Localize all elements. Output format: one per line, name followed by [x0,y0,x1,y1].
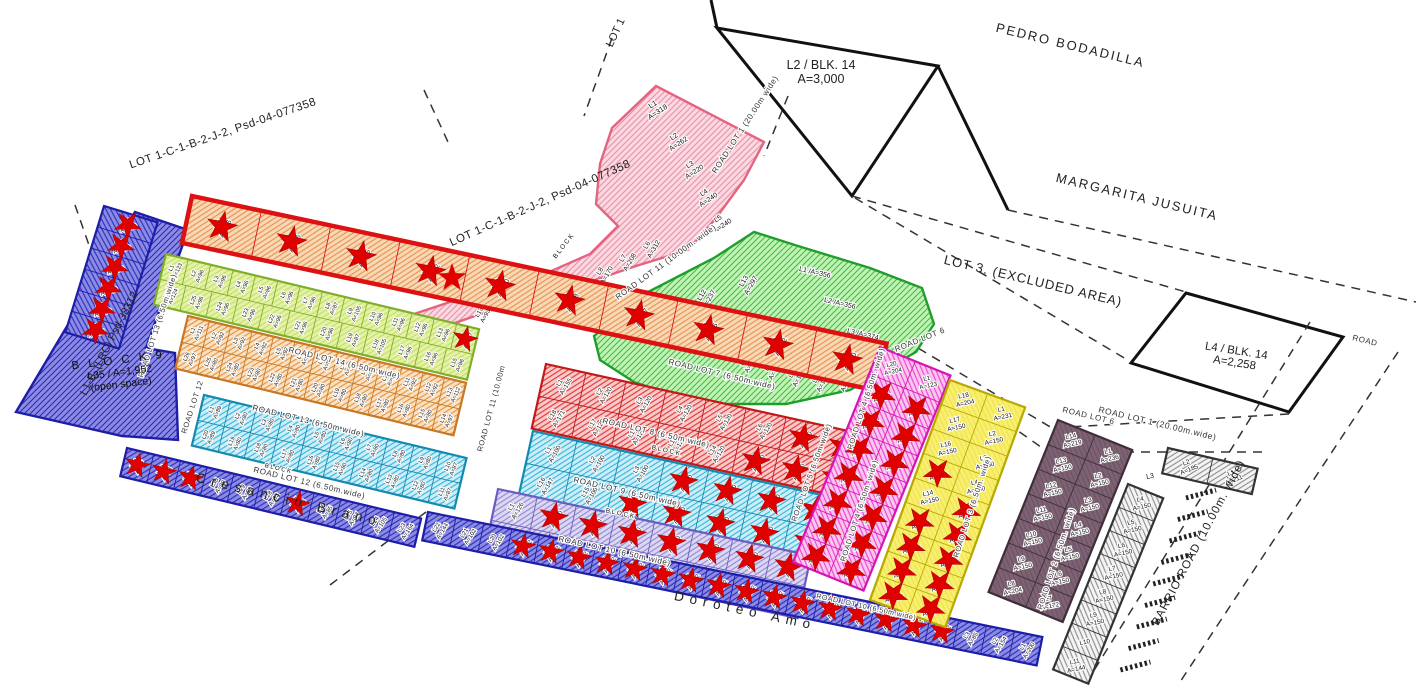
road-tick-marks [1186,490,1216,498]
boundary-line [711,0,717,28]
boundary-line-dashed [1085,322,1310,685]
lot-label: L3 [1146,473,1155,481]
parcel-l2-blk14-area: A=3,000 [756,72,886,86]
parcel-l2-blk14-name: L2 / BLK. 14 [756,58,886,72]
parcel-l2-blk14-label: L2 / BLK. 14 A=3,000 [756,58,886,86]
boundary-line-dashed [584,38,612,116]
subdivision-plan-map: L1A=318L2A=262L3A=220L4A=240L5A=240L6A=3… [0,0,1416,685]
boundary-line [938,66,1008,210]
lot-label: B L O C K [552,232,576,260]
boundary-line-dashed [764,96,788,156]
road-tick-marks [1129,641,1159,649]
road-label: ROAD LOT 11 (10.00m [475,364,507,452]
road-label: ROAD LOT 1 (20.00m.wide) [1098,404,1218,442]
road-label: ROAD [1352,333,1379,348]
road-tick-marks [1120,662,1150,670]
boundary-line-dashed [424,90,448,142]
road-tick-marks [1178,512,1208,520]
boundary-line-dashed [75,205,90,248]
